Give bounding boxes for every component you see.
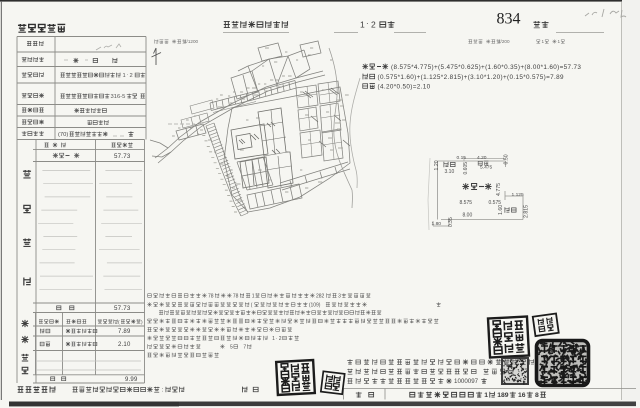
svg-text:·: · xyxy=(366,19,369,28)
svg-text:57.73: 57.73 xyxy=(114,305,131,312)
svg-text:(4.20*0.50)=2.10: (4.20*0.50)=2.10 xyxy=(378,83,431,90)
svg-text:1.60: 1.60 xyxy=(498,205,504,215)
svg-text:0.35: 0.35 xyxy=(448,217,454,227)
svg-text:1: 1 xyxy=(558,39,561,44)
svg-text:78: 78 xyxy=(233,294,239,300)
svg-text:4.20: 4.20 xyxy=(477,155,487,161)
svg-text:(70): (70) xyxy=(58,132,68,138)
svg-text:9.99: 9.99 xyxy=(125,377,138,383)
svg-text:282: 282 xyxy=(316,294,324,300)
svg-text:1.20: 1.20 xyxy=(434,160,440,170)
svg-text:834: 834 xyxy=(497,11,521,28)
svg-text:8: 8 xyxy=(535,392,539,399)
svg-text:(109): (109) xyxy=(309,303,321,309)
svg-text:(0.575*1.60)+(1.125*2.815)+(3.: (0.575*1.60)+(1.125*2.815)+(3.10*1.20)+(… xyxy=(378,74,565,81)
svg-text:0.15: 0.15 xyxy=(457,155,467,161)
svg-text:189: 189 xyxy=(497,392,509,399)
svg-text:8.575: 8.575 xyxy=(460,200,473,206)
svg-text:316-5: 316-5 xyxy=(111,94,126,100)
svg-text:2.815: 2.815 xyxy=(524,205,530,218)
svg-text:5: 5 xyxy=(230,345,233,351)
svg-text:1000097: 1000097 xyxy=(454,378,479,385)
svg-text:4.775: 4.775 xyxy=(496,183,502,196)
svg-text:3.10: 3.10 xyxy=(445,169,455,175)
svg-text:0.605: 0.605 xyxy=(463,162,469,175)
svg-text:1.80: 1.80 xyxy=(432,221,442,227)
svg-text:2: 2 xyxy=(279,336,282,342)
svg-text:3: 3 xyxy=(338,294,341,300)
svg-text:2: 2 xyxy=(371,20,376,30)
svg-text:5.475: 5.475 xyxy=(480,164,493,170)
svg-text:7.89: 7.89 xyxy=(118,329,131,335)
svg-text:78: 78 xyxy=(208,294,214,300)
svg-text:1: 1 xyxy=(252,294,255,300)
svg-text:0.50: 0.50 xyxy=(504,154,510,164)
svg-text:1/200: 1/200 xyxy=(498,39,510,44)
svg-text:7: 7 xyxy=(243,345,246,351)
svg-text:·: · xyxy=(127,72,129,78)
svg-text:(8.575*4.775)+(5.475*0.625)+(1: (8.575*4.775)+(5.475*0.625)+(1.60*0.35)+… xyxy=(391,64,581,71)
svg-text:57.73: 57.73 xyxy=(114,153,131,160)
svg-text:1.125: 1.125 xyxy=(512,192,525,198)
svg-text:8.00: 8.00 xyxy=(463,213,473,219)
svg-text:1: 1 xyxy=(360,20,365,30)
svg-text:1: 1 xyxy=(123,73,126,79)
svg-text:2: 2 xyxy=(130,73,133,79)
svg-text:1/1200: 1/1200 xyxy=(184,39,198,44)
svg-text:16: 16 xyxy=(518,392,526,399)
svg-text:1: 1 xyxy=(484,392,488,399)
svg-text:1: 1 xyxy=(542,39,545,44)
svg-text:2.10: 2.10 xyxy=(118,342,131,348)
